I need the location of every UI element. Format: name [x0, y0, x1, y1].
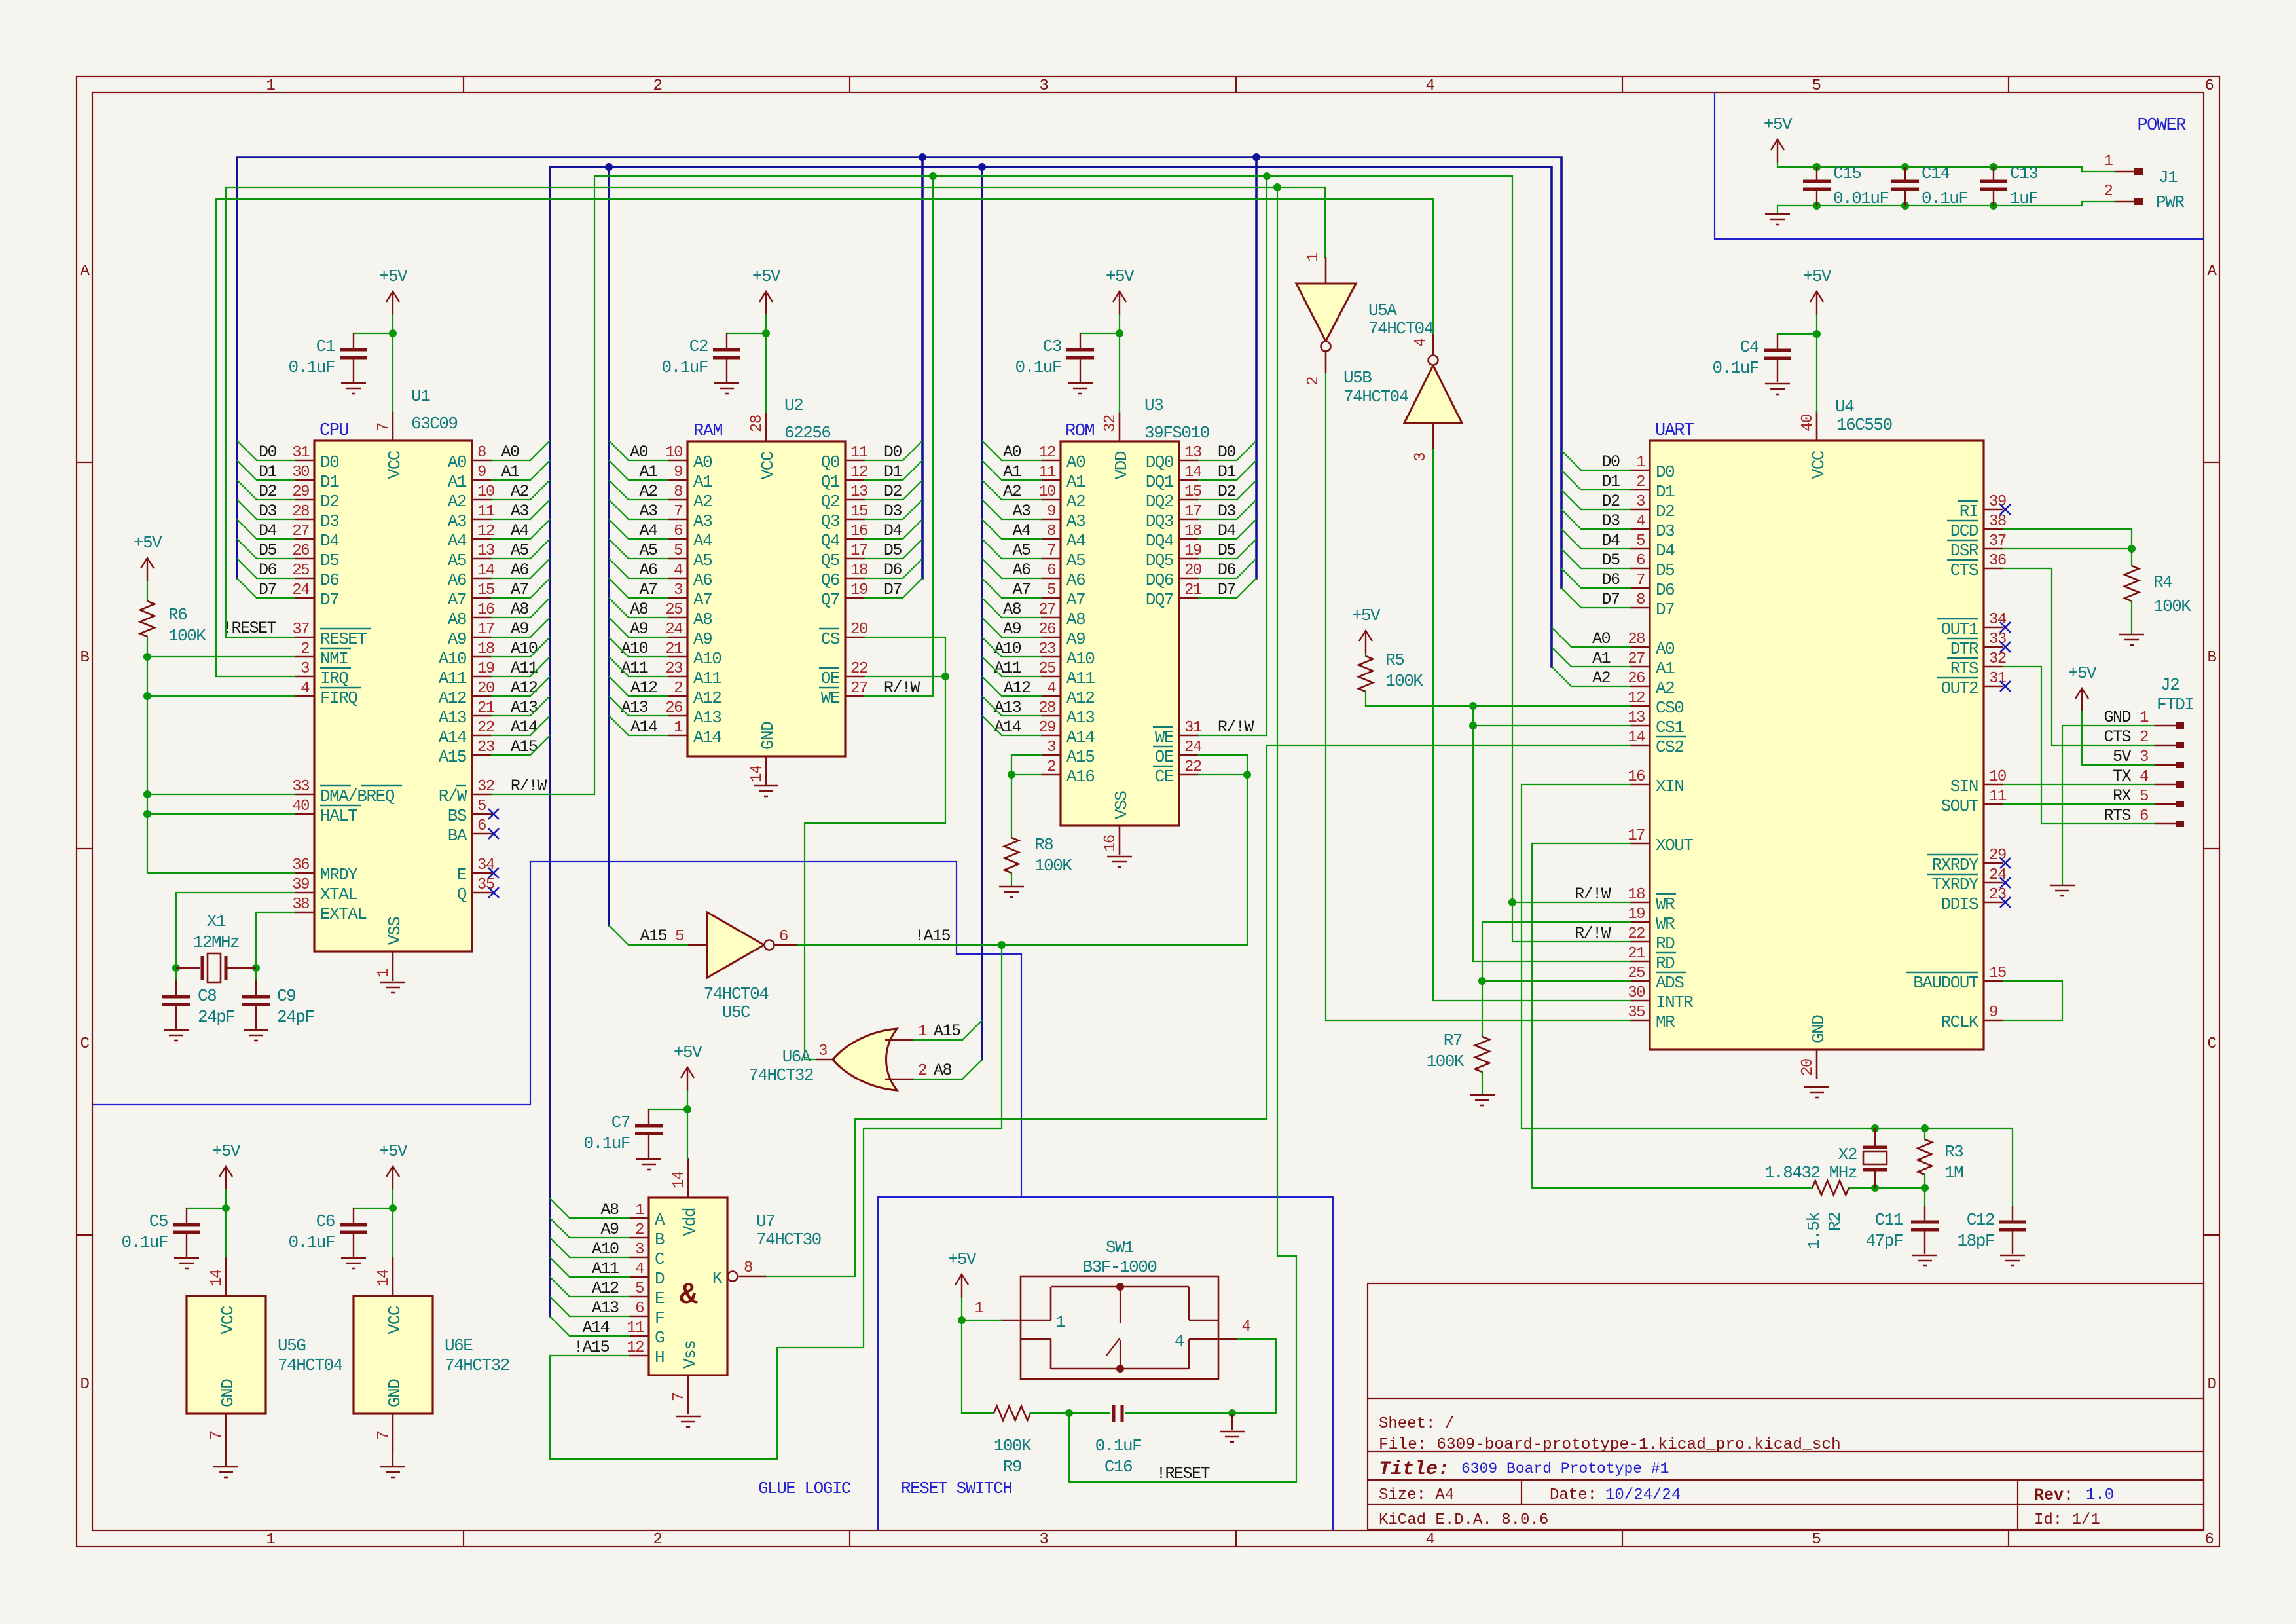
svg-text:63C09: 63C09: [411, 414, 458, 434]
svg-text:VSS: VSS: [385, 917, 405, 945]
svg-text:A13: A13: [511, 698, 538, 717]
svg-text:A1: A1: [1656, 659, 1675, 678]
svg-text:C12: C12: [1967, 1210, 1994, 1230]
svg-text:74HCT32: 74HCT32: [445, 1356, 509, 1375]
svg-text:R8: R8: [1034, 835, 1053, 855]
svg-text:!A15: !A15: [574, 1338, 610, 1357]
svg-text:1: 1: [1636, 454, 1645, 471]
svg-text:4: 4: [2140, 768, 2149, 786]
svg-text:18: 18: [477, 640, 494, 658]
svg-text:A12: A12: [592, 1279, 619, 1298]
svg-text:2: 2: [1047, 758, 1055, 776]
svg-text:A7: A7: [1066, 590, 1085, 610]
svg-text:7: 7: [670, 1393, 688, 1401]
svg-text:40: 40: [292, 798, 309, 815]
svg-text:D0: D0: [884, 443, 902, 462]
svg-text:A11: A11: [592, 1259, 619, 1278]
svg-text:4: 4: [1426, 77, 1435, 95]
svg-text:Q0: Q0: [821, 452, 839, 472]
svg-text:A0: A0: [1592, 629, 1611, 648]
svg-text:WR: WR: [1656, 914, 1675, 934]
svg-text:14: 14: [375, 1269, 393, 1287]
svg-text:62256: 62256: [784, 423, 831, 443]
svg-text:INTR: INTR: [1656, 993, 1693, 1012]
svg-text:A7: A7: [448, 590, 466, 610]
svg-text:A6: A6: [511, 561, 529, 580]
svg-text:U5A: U5A: [1368, 301, 1397, 320]
svg-text:DCD: DCD: [1950, 521, 1978, 541]
svg-text:A3: A3: [448, 511, 466, 531]
svg-text:DQ5: DQ5: [1146, 551, 1173, 570]
svg-text:D2: D2: [1602, 492, 1620, 511]
svg-text:C11: C11: [1875, 1210, 1903, 1230]
svg-text:A2: A2: [1656, 678, 1674, 698]
svg-text:VSS: VSS: [1112, 791, 1131, 819]
svg-text:+5V: +5V: [674, 1043, 702, 1062]
svg-text:26: 26: [292, 542, 309, 560]
svg-text:19: 19: [850, 581, 867, 599]
svg-text:TX: TX: [2113, 767, 2132, 786]
svg-text:A11: A11: [621, 659, 648, 678]
svg-text:A3: A3: [640, 502, 658, 521]
svg-text:D0: D0: [1602, 452, 1620, 471]
svg-text:C16: C16: [1104, 1457, 1132, 1477]
svg-text:D1: D1: [1218, 462, 1236, 481]
svg-text:D1: D1: [1656, 482, 1675, 502]
svg-text:A: A: [2208, 263, 2217, 280]
svg-text:32: 32: [1102, 415, 1120, 432]
svg-text:XOUT: XOUT: [1656, 836, 1693, 855]
svg-text:A9: A9: [601, 1220, 619, 1239]
svg-text:Q3: Q3: [821, 511, 839, 531]
svg-text:2: 2: [653, 77, 662, 95]
svg-text:R9: R9: [1003, 1457, 1021, 1477]
svg-text:32: 32: [1989, 650, 2006, 668]
svg-text:1: 1: [375, 969, 393, 978]
svg-text:R6: R6: [168, 605, 187, 625]
svg-text:1: 1: [1305, 253, 1322, 262]
svg-text:100K: 100K: [2153, 597, 2191, 616]
svg-text:OE: OE: [821, 669, 840, 688]
svg-text:D6: D6: [1602, 570, 1620, 589]
svg-text:WE: WE: [1155, 728, 1174, 747]
svg-text:OE: OE: [1155, 747, 1174, 767]
svg-text:3: 3: [1636, 493, 1645, 511]
svg-text:A0: A0: [448, 452, 466, 472]
svg-text:17: 17: [1184, 503, 1201, 521]
svg-text:D1: D1: [320, 472, 339, 492]
svg-text:17: 17: [850, 542, 867, 560]
svg-text:A2: A2: [640, 482, 658, 501]
svg-text:7: 7: [1047, 542, 1055, 560]
svg-text:D4: D4: [884, 521, 902, 540]
svg-text:A5: A5: [640, 541, 658, 560]
svg-text:11: 11: [627, 1319, 644, 1337]
svg-text:A13: A13: [994, 698, 1021, 717]
svg-text:B: B: [2208, 649, 2217, 667]
svg-text:!A15: !A15: [915, 927, 951, 946]
svg-text:KiCad E.D.A. 8.0.6: KiCad E.D.A. 8.0.6: [1379, 1511, 1548, 1529]
svg-text:A0: A0: [501, 443, 519, 462]
svg-text:8: 8: [674, 483, 682, 501]
svg-text:+5V: +5V: [134, 533, 162, 553]
svg-text:6: 6: [674, 523, 682, 540]
svg-text:A15: A15: [1066, 747, 1094, 767]
svg-text:A6: A6: [640, 561, 658, 580]
svg-text:Q1: Q1: [821, 472, 840, 492]
svg-text:10: 10: [1989, 768, 2006, 786]
svg-text:10: 10: [1038, 483, 1055, 501]
svg-text:24pF: 24pF: [198, 1007, 234, 1027]
svg-text:A14: A14: [1066, 728, 1095, 747]
svg-text:GLUE LOGIC: GLUE LOGIC: [758, 1479, 851, 1498]
svg-text:15: 15: [477, 581, 494, 599]
svg-text:3: 3: [1412, 453, 1430, 462]
svg-text:F: F: [655, 1308, 664, 1328]
svg-text:C9: C9: [277, 986, 295, 1006]
svg-text:100K: 100K: [994, 1436, 1032, 1456]
svg-text:12: 12: [1628, 690, 1645, 707]
svg-text:1.8432 MHz: 1.8432 MHz: [1764, 1163, 1857, 1183]
svg-text:U5B: U5B: [1343, 368, 1372, 388]
svg-text:2: 2: [635, 1221, 644, 1239]
svg-text:A6: A6: [1013, 561, 1031, 580]
svg-text:D7: D7: [320, 590, 338, 610]
svg-text:Q4: Q4: [821, 531, 840, 551]
svg-text:B: B: [655, 1230, 665, 1249]
svg-text:A1: A1: [1592, 649, 1611, 668]
svg-text:Id: 1/1: Id: 1/1: [2034, 1511, 2100, 1529]
svg-text:13: 13: [850, 483, 867, 501]
svg-text:SIN: SIN: [1950, 777, 1978, 796]
svg-text:OUT2: OUT2: [1941, 678, 1978, 698]
svg-text:1: 1: [1055, 1312, 1065, 1332]
svg-text:MRDY: MRDY: [320, 865, 358, 885]
svg-text:26: 26: [1038, 621, 1055, 638]
svg-text:D7: D7: [1602, 590, 1620, 609]
svg-text:20: 20: [477, 680, 494, 697]
svg-text:Q7: Q7: [821, 590, 839, 610]
svg-text:D4: D4: [1656, 541, 1675, 561]
svg-text:19: 19: [1628, 906, 1645, 923]
svg-text:CTS: CTS: [1950, 561, 1978, 580]
svg-text:13: 13: [1184, 444, 1201, 462]
svg-text:+5V: +5V: [948, 1249, 977, 1269]
svg-text:U6A: U6A: [782, 1047, 811, 1067]
svg-text:A14: A14: [994, 718, 1021, 737]
svg-text:2: 2: [2104, 183, 2113, 200]
svg-text:20: 20: [1799, 1059, 1817, 1076]
svg-text:!RESET: !RESET: [223, 619, 277, 638]
svg-text:9: 9: [674, 464, 682, 481]
svg-text:25: 25: [292, 562, 309, 580]
svg-text:D3: D3: [259, 502, 277, 521]
svg-text:3: 3: [818, 1043, 827, 1060]
svg-text:74HCT32: 74HCT32: [748, 1065, 813, 1085]
svg-text:D5: D5: [1656, 561, 1674, 580]
svg-text:+5V: +5V: [379, 1141, 408, 1161]
svg-text:C4: C4: [1740, 337, 1759, 357]
svg-text:15: 15: [850, 503, 867, 521]
svg-text:74HCT04: 74HCT04: [704, 984, 769, 1004]
svg-text:3: 3: [1040, 1531, 1048, 1549]
svg-text:C1: C1: [316, 337, 335, 356]
svg-text:6: 6: [2140, 807, 2148, 825]
svg-text:GND: GND: [758, 722, 778, 750]
svg-text:CPU: CPU: [319, 421, 348, 441]
svg-text:D0: D0: [1218, 443, 1236, 462]
svg-text:A12: A12: [693, 688, 721, 708]
svg-text:1.0: 1.0: [2086, 1486, 2114, 1504]
svg-text:25: 25: [665, 601, 682, 619]
svg-text:2: 2: [1636, 473, 1645, 491]
svg-text:MR: MR: [1656, 1012, 1675, 1032]
svg-text:24: 24: [665, 621, 683, 638]
svg-text:4: 4: [301, 680, 310, 697]
svg-text:Date:: Date:: [1550, 1486, 1597, 1504]
svg-text:Q: Q: [457, 885, 467, 904]
svg-text:C5: C5: [149, 1211, 168, 1231]
svg-text:E: E: [655, 1289, 665, 1308]
svg-text:A10: A10: [693, 649, 721, 669]
svg-text:16: 16: [850, 523, 867, 540]
svg-text:A4: A4: [448, 531, 467, 551]
svg-text:Size: A4: Size: A4: [1379, 1486, 1454, 1504]
svg-text:A15: A15: [934, 1022, 960, 1041]
svg-text:1: 1: [266, 77, 276, 95]
svg-text:Q5: Q5: [821, 551, 839, 570]
svg-text:30: 30: [292, 464, 309, 481]
svg-text:RESET: RESET: [320, 629, 367, 649]
svg-text:10/24/24: 10/24/24: [1605, 1486, 1681, 1504]
svg-text:A3: A3: [1013, 502, 1031, 521]
svg-text:A11: A11: [693, 669, 721, 688]
svg-text:A3: A3: [511, 502, 529, 521]
svg-text:BAUDOUT: BAUDOUT: [1913, 973, 1978, 993]
svg-text:Q2: Q2: [821, 492, 839, 511]
svg-text:13: 13: [477, 542, 494, 560]
svg-text:DQ4: DQ4: [1146, 531, 1174, 551]
svg-text:12: 12: [850, 464, 867, 481]
svg-text:A15: A15: [640, 927, 666, 946]
svg-text:A6: A6: [1066, 570, 1085, 590]
svg-text:25: 25: [1628, 965, 1645, 982]
svg-text:5: 5: [1047, 581, 1055, 599]
svg-text:14: 14: [670, 1171, 688, 1189]
svg-text:28: 28: [1628, 631, 1645, 648]
svg-text:A4: A4: [511, 521, 529, 540]
svg-text:A13: A13: [439, 708, 466, 728]
svg-text:RTS: RTS: [1950, 659, 1978, 678]
svg-text:1: 1: [674, 719, 683, 737]
svg-text:D7: D7: [1218, 580, 1236, 599]
svg-text:39FS010: 39FS010: [1144, 423, 1209, 443]
svg-text:5: 5: [2140, 788, 2148, 805]
svg-text:B3F-1000: B3F-1000: [1083, 1257, 1157, 1277]
svg-text:100K: 100K: [168, 626, 206, 646]
svg-text:VCC: VCC: [218, 1306, 238, 1334]
svg-text:&: &: [680, 1278, 698, 1312]
svg-text:0.1uF: 0.1uF: [1095, 1436, 1142, 1456]
svg-text:FIRQ: FIRQ: [320, 688, 357, 708]
svg-text:GND: GND: [385, 1379, 405, 1407]
svg-text:5: 5: [674, 542, 682, 560]
svg-text:17: 17: [477, 621, 494, 638]
svg-text:D6: D6: [259, 561, 277, 580]
svg-text:A14: A14: [439, 728, 467, 747]
svg-text:30: 30: [1628, 984, 1645, 1002]
svg-text:A9: A9: [1066, 629, 1085, 649]
svg-text:A1: A1: [448, 472, 467, 492]
svg-text:24: 24: [1184, 739, 1202, 756]
svg-text:U7: U7: [756, 1211, 774, 1231]
svg-text:74HCT04: 74HCT04: [278, 1356, 343, 1375]
svg-text:CS0: CS0: [1656, 698, 1683, 718]
svg-text:4: 4: [1242, 1318, 1251, 1336]
svg-text:6309 Board Prototype #1: 6309 Board Prototype #1: [1461, 1460, 1669, 1477]
svg-text:6: 6: [1047, 562, 1055, 580]
svg-text:GND: GND: [218, 1379, 238, 1407]
svg-text:4: 4: [1636, 513, 1645, 530]
svg-text:23: 23: [477, 739, 494, 756]
svg-text:1: 1: [2104, 153, 2113, 170]
svg-text:R/!W: R/!W: [1218, 718, 1254, 737]
svg-text:A2: A2: [448, 492, 466, 511]
svg-text:A14: A14: [630, 718, 657, 737]
svg-text:18: 18: [1184, 523, 1201, 540]
svg-text:5: 5: [477, 798, 486, 815]
svg-text:7: 7: [375, 423, 393, 432]
svg-text:5V: 5V: [2113, 747, 2132, 766]
svg-text:0.1uF: 0.1uF: [661, 358, 708, 377]
svg-text:D7: D7: [884, 580, 902, 599]
svg-text:C8: C8: [198, 986, 216, 1006]
svg-text:C14: C14: [1922, 164, 1950, 183]
svg-text:Sheet: /: Sheet: /: [1379, 1415, 1454, 1433]
svg-text:A2: A2: [511, 482, 529, 501]
svg-text:D5: D5: [259, 541, 277, 560]
svg-text:11: 11: [850, 444, 868, 462]
svg-text:A1: A1: [1003, 462, 1021, 481]
svg-text:A2: A2: [1003, 482, 1021, 501]
svg-text:2: 2: [653, 1531, 662, 1549]
svg-text:RESET SWITCH: RESET SWITCH: [901, 1479, 1011, 1498]
svg-text:RI: RI: [1959, 502, 1978, 521]
svg-text:A8: A8: [1003, 600, 1021, 619]
svg-text:0.1uF: 0.1uF: [288, 1232, 335, 1252]
svg-text:FTDI: FTDI: [2157, 695, 2193, 714]
svg-text:29: 29: [292, 483, 309, 501]
svg-text:U1: U1: [411, 386, 430, 406]
svg-text:3: 3: [674, 581, 682, 599]
svg-text:A9: A9: [1003, 619, 1021, 638]
svg-text:D5: D5: [1602, 551, 1620, 570]
svg-text:A14: A14: [583, 1318, 610, 1337]
svg-text:4: 4: [1047, 680, 1056, 697]
svg-text:R/!W: R/!W: [1575, 924, 1611, 943]
svg-text:2: 2: [301, 640, 309, 658]
svg-text:A4: A4: [693, 531, 712, 551]
svg-text:A8: A8: [630, 600, 648, 619]
svg-text:EXTAL: EXTAL: [320, 904, 367, 924]
svg-text:A5: A5: [448, 551, 466, 570]
svg-text:21: 21: [1184, 581, 1202, 599]
svg-text:100K: 100K: [1385, 671, 1423, 691]
svg-text:0.1uF: 0.1uF: [583, 1134, 630, 1153]
svg-text:J2: J2: [2160, 675, 2179, 695]
svg-text:A10: A10: [994, 639, 1021, 658]
svg-text:C: C: [2208, 1035, 2217, 1053]
svg-text:A12: A12: [1066, 688, 1094, 708]
svg-text:A5: A5: [511, 541, 529, 560]
svg-text:2: 2: [1305, 377, 1322, 386]
svg-text:1uF: 1uF: [2010, 189, 2037, 208]
svg-text:WE: WE: [821, 688, 840, 708]
svg-text:A6: A6: [448, 570, 466, 590]
svg-text:RTS: RTS: [2104, 806, 2130, 825]
svg-text:RD: RD: [1656, 934, 1675, 953]
svg-text:11: 11: [1038, 464, 1056, 481]
svg-text:D3: D3: [1656, 521, 1674, 541]
svg-text:9: 9: [1047, 503, 1055, 521]
svg-text:19: 19: [477, 660, 494, 678]
svg-text:15: 15: [1184, 483, 1201, 501]
svg-text:4: 4: [635, 1261, 644, 1278]
svg-text:R7: R7: [1444, 1031, 1462, 1050]
svg-text:D4: D4: [1602, 531, 1620, 550]
svg-text:A8: A8: [693, 610, 712, 629]
svg-text:D5: D5: [320, 551, 338, 570]
svg-text:R3: R3: [1944, 1142, 1963, 1162]
svg-text:0.01uF: 0.01uF: [1833, 189, 1889, 208]
svg-text:12MHz: 12MHz: [193, 932, 240, 952]
svg-text:D6: D6: [1656, 580, 1674, 600]
svg-text:29: 29: [1038, 719, 1055, 737]
svg-text:A14: A14: [511, 718, 538, 737]
svg-text:X2: X2: [1838, 1145, 1857, 1164]
svg-text:+5V: +5V: [379, 267, 408, 286]
svg-text:DDIS: DDIS: [1941, 895, 1978, 914]
svg-text:A12: A12: [511, 678, 538, 697]
svg-text:36: 36: [292, 857, 309, 874]
svg-text:100K: 100K: [1034, 856, 1072, 876]
svg-text:D0: D0: [320, 452, 338, 472]
svg-text:20: 20: [1184, 562, 1201, 580]
svg-text:18: 18: [1628, 886, 1645, 904]
svg-text:CS2: CS2: [1656, 737, 1683, 757]
svg-text:CS: CS: [821, 629, 840, 649]
svg-text:U5C: U5C: [722, 1003, 750, 1022]
svg-text:A4: A4: [1013, 521, 1031, 540]
svg-text:A10: A10: [1066, 649, 1094, 669]
svg-text:27: 27: [1038, 601, 1055, 619]
svg-text:C3: C3: [1043, 337, 1061, 356]
svg-text:21: 21: [1628, 945, 1645, 963]
svg-text:H: H: [655, 1348, 664, 1367]
svg-text:A1: A1: [640, 462, 658, 481]
svg-text:31: 31: [1184, 719, 1202, 737]
svg-text:27: 27: [1628, 650, 1645, 668]
svg-text:5: 5: [1812, 77, 1821, 95]
svg-text:X1: X1: [207, 912, 226, 931]
svg-text:D4: D4: [259, 521, 277, 540]
svg-text:U6E: U6E: [445, 1336, 473, 1356]
svg-text:A2: A2: [1592, 669, 1611, 688]
svg-text:A10: A10: [439, 649, 466, 669]
svg-text:XTAL: XTAL: [320, 885, 357, 904]
svg-text:A6: A6: [693, 570, 712, 590]
svg-text:24: 24: [292, 581, 310, 599]
